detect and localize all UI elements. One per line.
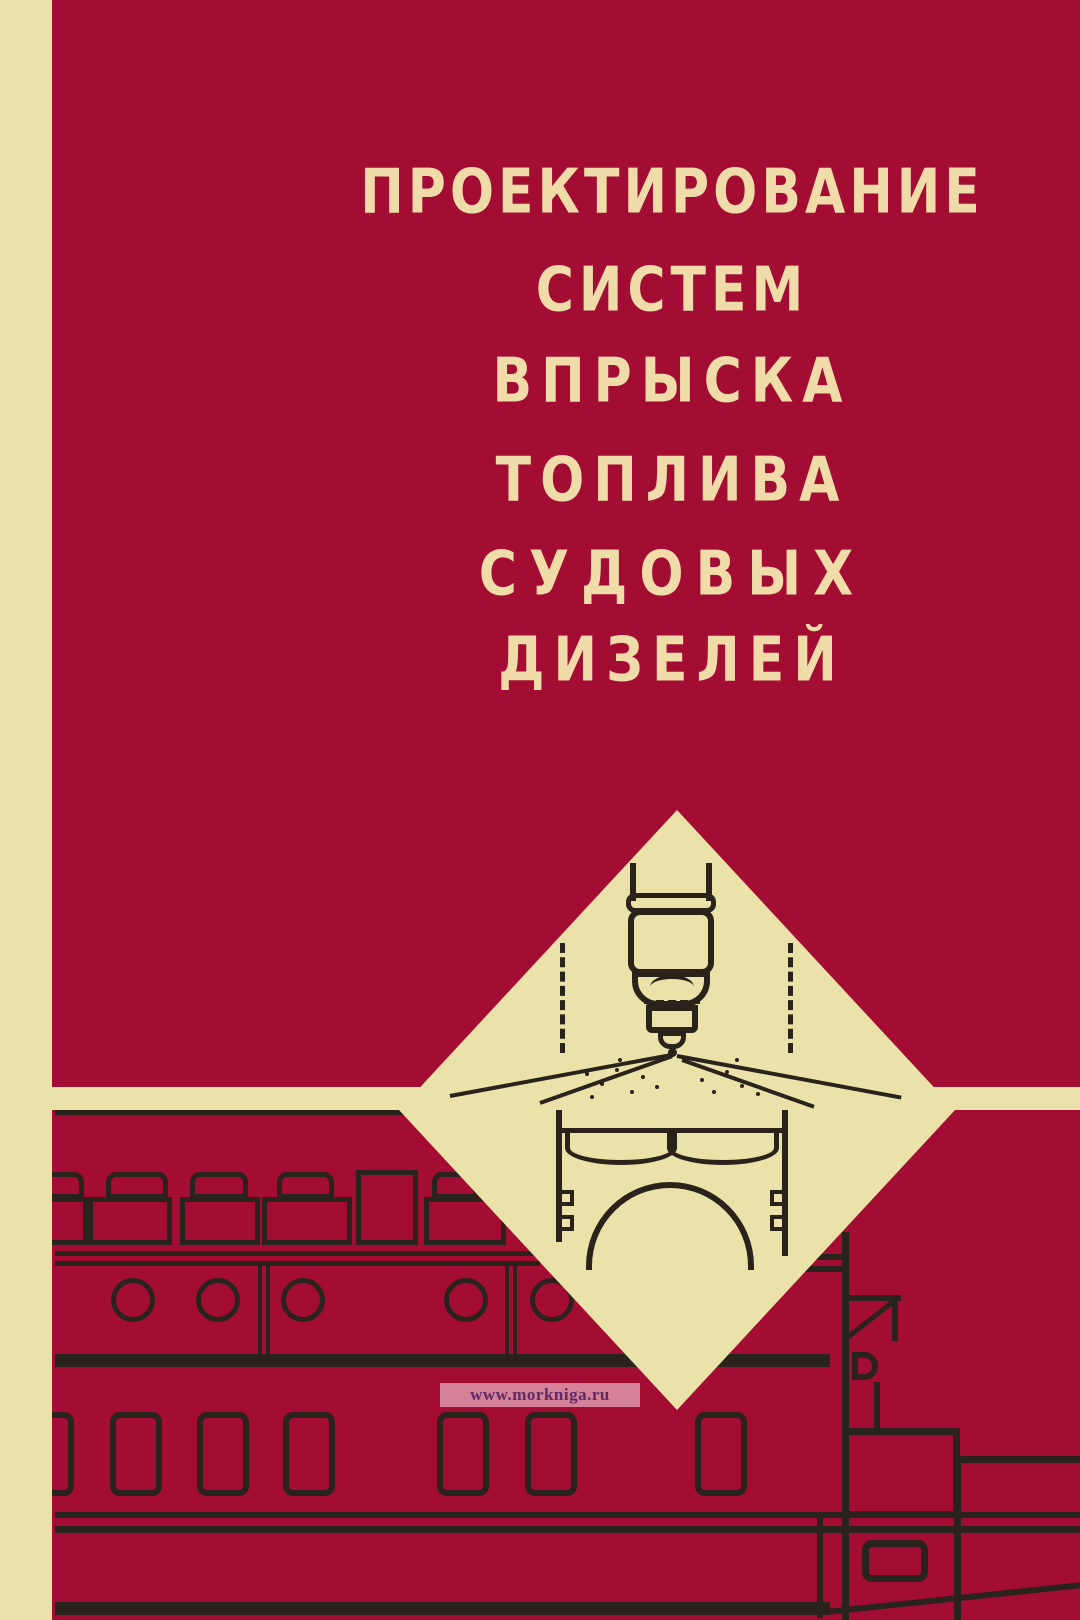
book-cover: ПРОЕКТИРОВАНИЕ СИСТЕМ ВПРЫСКА ТОПЛИВА СУ… xyxy=(0,0,1080,1620)
title-line: ПРОЕКТИРОВАНИЕ xyxy=(232,162,1080,223)
title-line: СИСТЕМ xyxy=(232,260,1080,321)
cover-left-paper-strip xyxy=(0,0,52,1620)
title-line: ВПРЫСКА xyxy=(232,351,1080,412)
title-line: ТОПЛИВА xyxy=(232,450,1080,511)
title-block: ПРОЕКТИРОВАНИЕ СИСТЕМ ВПРЫСКА ТОПЛИВА СУ… xyxy=(0,0,1080,1620)
title-line: ДИЗЕЛЕЙ xyxy=(232,630,1080,691)
watermark: www.morkniga.ru xyxy=(440,1383,640,1407)
title-line: СУДОВЫХ xyxy=(232,544,1080,605)
